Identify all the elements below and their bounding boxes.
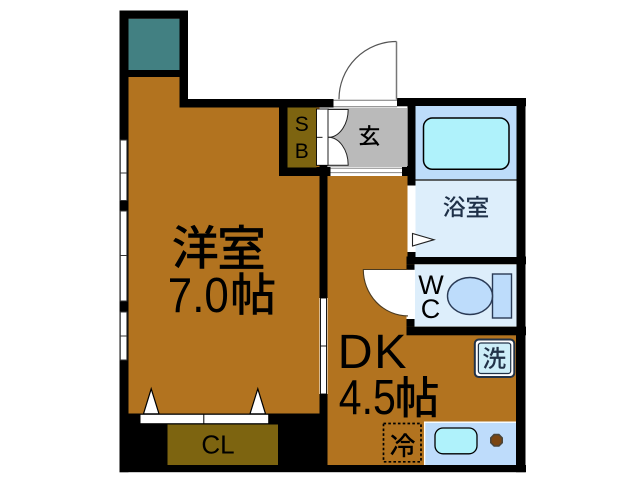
svg-text:B: B xyxy=(295,140,309,163)
svg-text:C: C xyxy=(421,294,441,324)
svg-text:7.0: 7.0 xyxy=(168,269,229,323)
svg-text:CL: CL xyxy=(201,430,234,460)
svg-text:4.5: 4.5 xyxy=(339,371,396,425)
svg-text:S: S xyxy=(295,113,309,136)
